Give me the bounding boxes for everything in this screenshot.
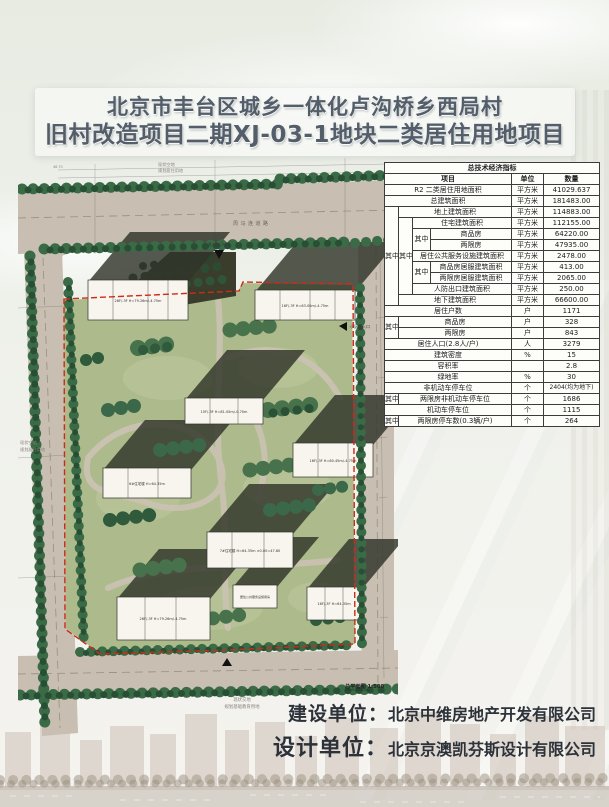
table-title: 总技术经济指标 bbox=[385, 163, 600, 174]
cell-qty: 181483.00 bbox=[544, 196, 600, 207]
cell-unit: 平方米 bbox=[512, 273, 544, 284]
table-row: 居住公共服务设施建筑面积 平方米 2478.00 bbox=[385, 251, 600, 262]
cell-qty: 1171 bbox=[544, 306, 600, 317]
cell-item: 两限房 bbox=[431, 240, 512, 251]
building-label: 26F/-3F H=79.26m/-4.75m bbox=[140, 617, 187, 621]
project-title-line1: 北京市丰台区城乡一体化卢沟桥乡西局村 bbox=[107, 95, 503, 119]
cell-qty: 114883.00 bbox=[544, 207, 600, 218]
cell-unit bbox=[512, 361, 544, 372]
cell-item: 建筑密度 bbox=[385, 350, 512, 361]
cell-qty: 64220.00 bbox=[544, 229, 600, 240]
cell-unit: 平方米 bbox=[512, 229, 544, 240]
cell-item: 人防出口建筑面积 bbox=[413, 284, 512, 295]
skyline-treeline bbox=[0, 778, 609, 784]
building-label: 15F/-3F H=81.05m/-0.70m bbox=[201, 410, 248, 414]
cell-qty: 15 bbox=[544, 350, 600, 361]
building: 居住公共服务设施用房 bbox=[233, 585, 277, 608]
cell-item: 非机动车停车位 bbox=[385, 383, 512, 394]
building-label: 26F/-3F H=79.26m/-4.75m bbox=[115, 299, 162, 303]
building-label: 7#住宅楼 H=64.35m ±0.00=47.60 bbox=[220, 548, 281, 553]
table-row: 机动车停车位 个 1115 bbox=[385, 405, 600, 416]
building: 26F/-3F H=79.26m/-4.75m bbox=[88, 280, 188, 320]
entrance-top-label: 进入口(人行) bbox=[207, 241, 231, 247]
left-note-line1: 现状空地 bbox=[20, 439, 38, 446]
credits-block: 建设单位：北京中维房地产开发有限公司 设计单位：北京京澳凯芬斯设计有限公司 bbox=[176, 699, 596, 766]
cell-qty: 41029.637 bbox=[544, 185, 600, 196]
cell-item: 两限房居服建筑面积 bbox=[431, 273, 512, 284]
building-label: 16F/-3F H=64.35m bbox=[317, 602, 351, 606]
table-row: 人防出口建筑面积 平方米 250.00 bbox=[385, 284, 600, 295]
cell-qty: 66600.00 bbox=[544, 295, 600, 306]
table-row: 其中 两限房非机动车停车位 个 1686 bbox=[385, 394, 600, 405]
table-row: 其中 住宅建筑面积 平方米 112155.00 bbox=[385, 218, 600, 229]
table-row: R2 二类居住用地面积 平方米 41029.637 bbox=[385, 185, 600, 196]
cell-item: 地下建筑面积 bbox=[399, 295, 512, 306]
top-note-line2: 规划居住用地 bbox=[158, 167, 184, 174]
left-note-line2: 规划居住用地 bbox=[20, 446, 46, 453]
table-row: 其中 商品房 平方米 64220.00 bbox=[385, 229, 600, 240]
cell-unit: 个 bbox=[512, 383, 544, 394]
poster-page: { "title": { "line1": "北京市丰台区城乡一体化卢沟桥乡西局… bbox=[0, 0, 609, 807]
cell-item: 两限房非机动车停车位 bbox=[399, 394, 512, 405]
building: 6#住宅楼 H=64.35m bbox=[103, 468, 191, 498]
cell-zhong: 其中 bbox=[385, 317, 399, 339]
col-header-qty: 数量 bbox=[544, 174, 600, 185]
cell-unit: 平方米 bbox=[512, 262, 544, 273]
cell-item: 居住户数 bbox=[385, 306, 512, 317]
design-unit-label: 设计单位： bbox=[273, 736, 388, 761]
cell-qty: 843 bbox=[544, 328, 600, 339]
table-header-row: 项目 单位 数量 bbox=[385, 174, 600, 185]
cell-zhong: 其中 bbox=[385, 394, 399, 405]
cell-unit: 平方米 bbox=[512, 251, 544, 262]
cell-unit: 平方米 bbox=[512, 185, 544, 196]
cell-item: 两限房停车数(0.3辆/户) bbox=[399, 416, 512, 427]
cell-item: 居住公共服务设施建筑面积 bbox=[413, 251, 512, 262]
cell-unit: 平方米 bbox=[512, 240, 544, 251]
cell-zhong: 其中 bbox=[413, 262, 431, 284]
table-row: 非机动车停车位 个 2404(均为地下) bbox=[385, 383, 600, 394]
cell-qty: 112155.00 bbox=[544, 218, 600, 229]
title-block: 北京市丰台区城乡一体化卢沟桥乡西局村 旧村改造项目二期XJ-03-1地块二类居住… bbox=[35, 88, 575, 156]
site-plan: 26F/-3F H=79.26m/-4.75m 16F/-3F H=63.00m… bbox=[18, 158, 398, 738]
skyline-ground bbox=[0, 786, 609, 790]
cell-unit: 平方米 bbox=[512, 196, 544, 207]
cell-unit: 平方米 bbox=[512, 218, 544, 229]
cell-qty: 413.00 bbox=[544, 262, 600, 273]
plan-scale-label: 总平面图 1:500 bbox=[345, 682, 384, 690]
table-row: 建筑密度 % 15 bbox=[385, 350, 600, 361]
cell-qty: 250.00 bbox=[544, 284, 600, 295]
building: 26F/-3F H=79.26m/-4.75m bbox=[117, 597, 210, 640]
cell-item: 绿地率 bbox=[385, 372, 512, 383]
cell-unit: 平方米 bbox=[512, 207, 544, 218]
cell-zhong: 其中 bbox=[413, 229, 431, 251]
building: 16F/-3F H=64.35m bbox=[307, 587, 362, 620]
cell-qty: 264 bbox=[544, 416, 600, 427]
cell-item: 机动车停车位 bbox=[385, 405, 512, 416]
entrance-right-label: 小区主入口 bbox=[350, 323, 370, 329]
cell-qty: 2404(均为地下) bbox=[544, 383, 600, 394]
table-row: 其中 两限房停车数(0.3辆/户) 个 264 bbox=[385, 416, 600, 427]
table-row: 两限房 户 843 bbox=[385, 328, 600, 339]
cell-item: 居住人口(2.8人/户) bbox=[385, 339, 512, 350]
cell-item: R2 二类居住用地面积 bbox=[385, 185, 512, 196]
building-label: 居住公共服务设施用房 bbox=[240, 594, 270, 599]
table-row: 居住户数 户 1171 bbox=[385, 306, 600, 317]
cell-zhong: 其中 bbox=[385, 416, 399, 427]
technical-indicators-table: 总技术经济指标 项目 单位 数量 R2 二类居住用地面积 平方米 41029.6… bbox=[384, 162, 600, 427]
cell-qty: 2478.00 bbox=[544, 251, 600, 262]
road-name-label: 周马连道路 bbox=[233, 220, 271, 227]
cell-qty: 2.8 bbox=[544, 361, 600, 372]
table-row: 绿地率 % 30 bbox=[385, 372, 600, 383]
water-reflections bbox=[10, 795, 600, 802]
design-unit-value: 北京京澳凯芬斯设计有限公司 bbox=[388, 740, 596, 759]
table-row: 居住人口(2.8人/户) 人 3279 bbox=[385, 339, 600, 350]
cell-qty: 2065.00 bbox=[544, 273, 600, 284]
cell-qty: 328 bbox=[544, 317, 600, 328]
cell-item: 总建筑面积 bbox=[385, 196, 512, 207]
cell-item: 商品房 bbox=[399, 317, 512, 328]
cell-unit: % bbox=[512, 372, 544, 383]
cell-zhong: 其中 bbox=[385, 207, 399, 306]
cell-unit: 平方米 bbox=[512, 284, 544, 295]
site-plan-drawing: 26F/-3F H=79.26m/-4.75m 16F/-3F H=63.00m… bbox=[18, 158, 398, 738]
cell-qty: 1115 bbox=[544, 405, 600, 416]
col-header-unit: 单位 bbox=[512, 174, 544, 185]
cell-qty: 47935.00 bbox=[544, 240, 600, 251]
table-row: 地下建筑面积 平方米 66600.00 bbox=[385, 295, 600, 306]
cell-unit: % bbox=[512, 350, 544, 361]
table-row: 其中 商品房居服建筑面积 平方米 413.00 bbox=[385, 262, 600, 273]
cell-unit: 平方米 bbox=[512, 295, 544, 306]
table-row: 容积率 2.8 bbox=[385, 361, 600, 372]
cell-unit: 个 bbox=[512, 394, 544, 405]
cell-unit: 个 bbox=[512, 405, 544, 416]
construction-unit-value: 北京中维房地产开发有限公司 bbox=[388, 705, 596, 724]
building: 7#住宅楼 H=64.35m ±0.00=47.60 bbox=[207, 532, 293, 568]
building-label: 6#住宅楼 H=64.35m bbox=[129, 481, 165, 486]
building: 16F/-3F H=63.00m/-4.75m bbox=[255, 290, 355, 320]
cell-unit: 户 bbox=[512, 317, 544, 328]
cell-unit: 户 bbox=[512, 328, 544, 339]
design-unit-line: 设计单位：北京京澳凯芬斯设计有限公司 bbox=[176, 730, 596, 762]
cell-qty: 1686 bbox=[544, 394, 600, 405]
table-row: 总建筑面积 平方米 181483.00 bbox=[385, 196, 600, 207]
cell-item: 商品房 bbox=[431, 229, 512, 240]
col-header-item: 项目 bbox=[385, 174, 512, 185]
cell-unit: 户 bbox=[512, 306, 544, 317]
building: 15F/-3F H=81.05m/-0.70m bbox=[185, 398, 263, 424]
skyline-water bbox=[0, 790, 609, 807]
table-row: 其中 商品房 户 328 bbox=[385, 317, 600, 328]
construction-unit-line: 建设单位：北京中维房地产开发有限公司 bbox=[176, 699, 596, 726]
cell-item: 两限房 bbox=[399, 328, 512, 339]
cell-unit: 人 bbox=[512, 339, 544, 350]
cell-item: 地上建筑面积 bbox=[399, 207, 512, 218]
cell-item: 住宅建筑面积 bbox=[413, 218, 512, 229]
cell-qty: 3279 bbox=[544, 339, 600, 350]
cell-qty: 30 bbox=[544, 372, 600, 383]
top-note-line1: 现状空地 bbox=[158, 161, 176, 168]
cell-unit: 个 bbox=[512, 416, 544, 427]
project-title-line2: 旧村改造项目二期XJ-03-1地块二类居住用地项目 bbox=[45, 122, 565, 148]
cell-zhong: 其中 bbox=[399, 218, 413, 295]
cell-item: 商品房居服建筑面积 bbox=[431, 262, 512, 273]
building-label: 16F/-3F H=80.45m/-4.75m bbox=[310, 459, 357, 463]
table-title-row: 总技术经济指标 bbox=[385, 163, 600, 174]
building-label: 16F/-3F H=63.00m/-4.75m bbox=[282, 304, 329, 308]
elevation-note: 46.70 bbox=[53, 165, 63, 169]
table-row: 其中 地上建筑面积 平方米 114883.00 bbox=[385, 207, 600, 218]
construction-unit-label: 建设单位： bbox=[288, 703, 388, 725]
cell-item: 容积率 bbox=[385, 361, 512, 372]
